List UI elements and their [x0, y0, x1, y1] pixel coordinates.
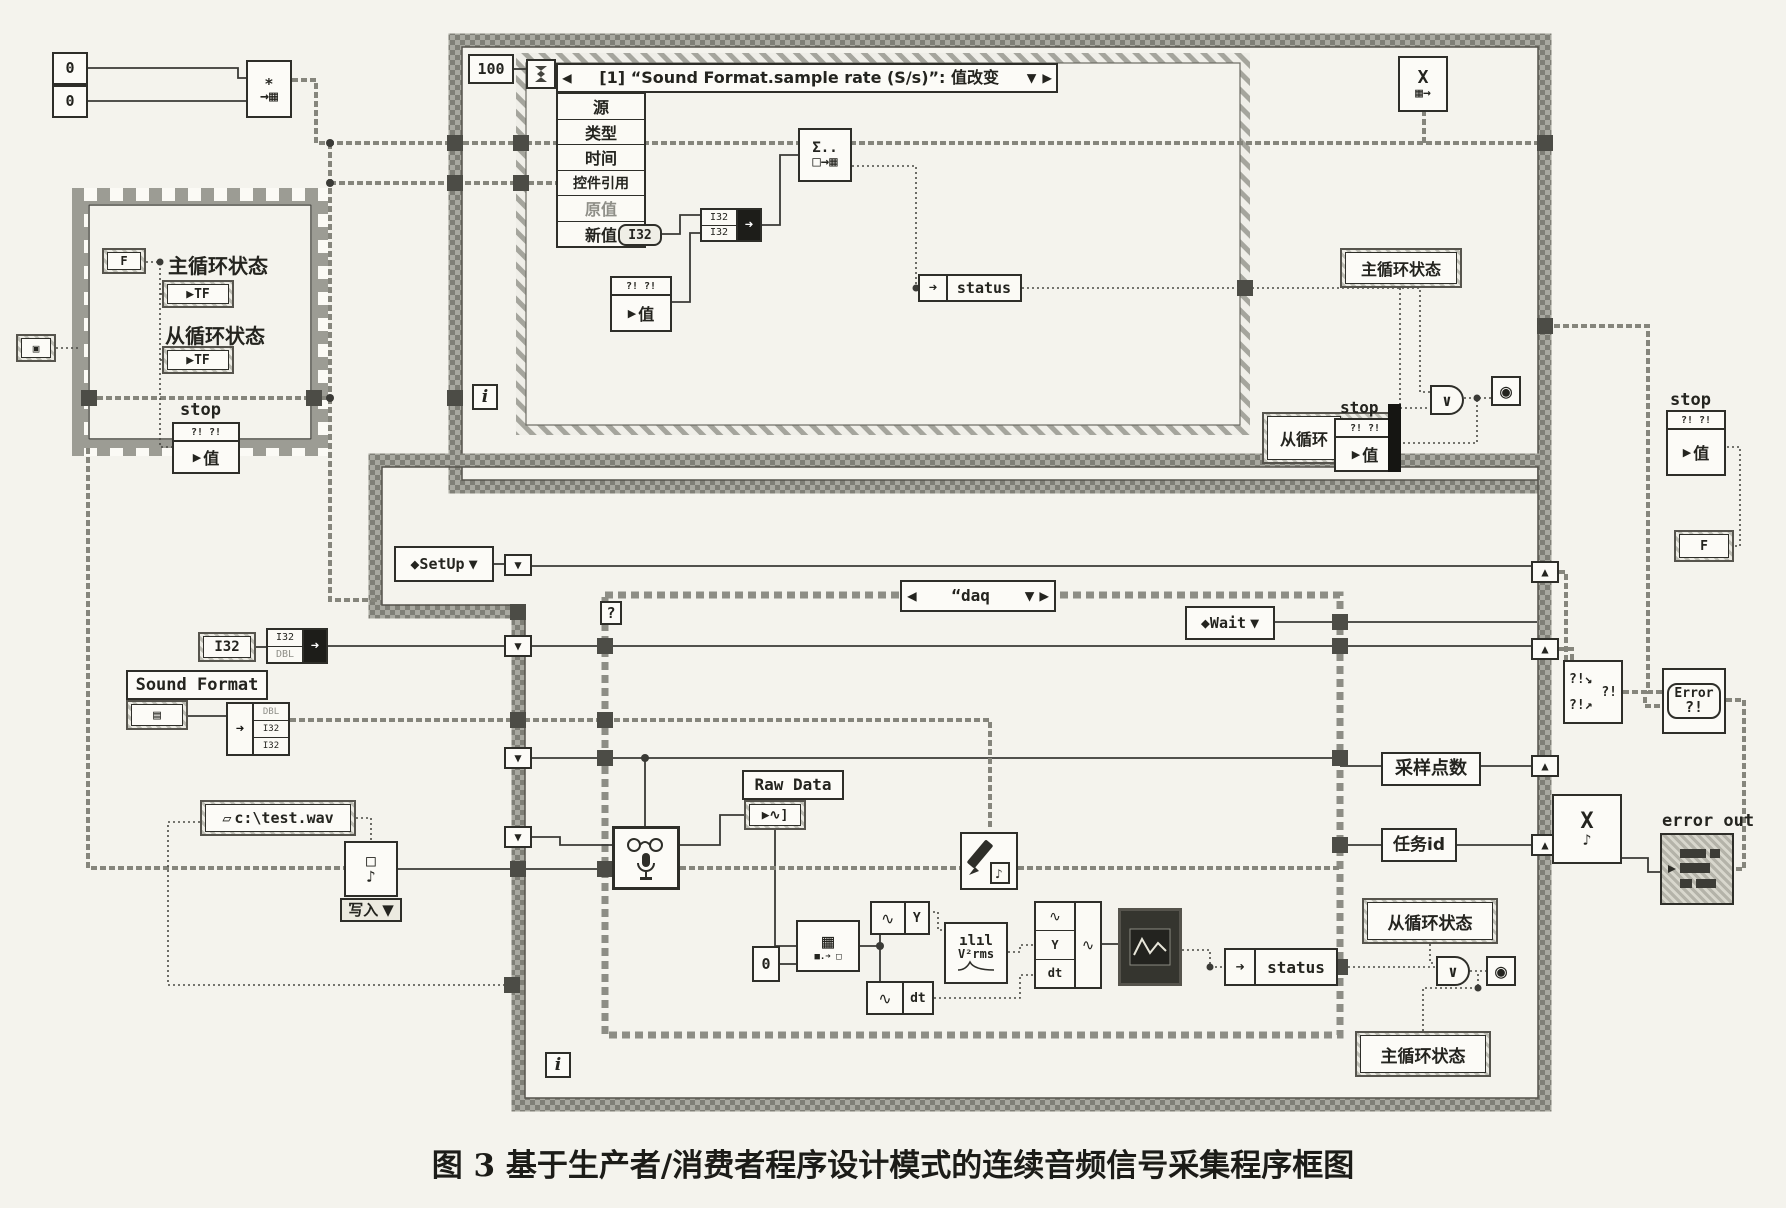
main-state-label-seq: 主循环状态: [168, 250, 268, 279]
shift-register-left-4[interactable]: ▼: [504, 826, 532, 848]
microphone-icon: [636, 853, 656, 881]
timeout-hourglass-icon: [526, 59, 556, 89]
event-field-type: 类型: [558, 120, 644, 146]
newval-i32-terminal[interactable]: I32: [618, 224, 662, 246]
unbundle-node[interactable]: ➜ DBL I32 I32: [226, 702, 290, 756]
scrollbar-slug: [1388, 404, 1401, 472]
get-waveform-y-node[interactable]: ∿ Y: [870, 901, 930, 935]
wire-layer: [0, 0, 1786, 1208]
sound-file-close-icon[interactable]: X ♪: [1552, 794, 1622, 864]
event-case-selector[interactable]: ◀ [1] “Sound Format.sample rate (S/s)”: …: [556, 63, 1058, 93]
daq-case-selector[interactable]: ◀ “daq ▼▶: [900, 580, 1056, 612]
task-id-indicator[interactable]: 任务id: [1381, 828, 1457, 862]
obtain-queue-icon[interactable]: ∗ →▦: [246, 60, 292, 118]
zero-constant[interactable]: 0: [752, 946, 780, 982]
stop-label-top: stop: [1340, 398, 1379, 417]
shift-register-right-1[interactable]: ▲: [1531, 561, 1559, 583]
stop-value-node-seq[interactable]: ?! ?! ▶值: [172, 422, 240, 474]
iteration-terminal-bottom: i: [545, 1052, 571, 1078]
release-queue-icon[interactable]: X ▦→: [1398, 56, 1448, 112]
index-array-icon[interactable]: ▦ ■.➜ □: [796, 920, 860, 972]
event-next-arrow[interactable]: ▶: [1042, 70, 1052, 86]
sub-state-label-seq: 从循环状态: [165, 320, 265, 349]
or-gate-icon-bottom[interactable]: ∨: [1436, 956, 1470, 986]
i32-conversion-node[interactable]: I32 I32 ➜: [700, 208, 762, 242]
sound-input-read-icon[interactable]: [612, 826, 680, 890]
stop-value-property-node-top[interactable]: ?! ?! ▶值: [1334, 418, 1396, 472]
sample-count-indicator[interactable]: 采样点数: [1381, 752, 1481, 786]
timeout-constant[interactable]: 100: [468, 54, 514, 84]
svg-text:♪: ♪: [995, 867, 1003, 881]
event-case-title: [1] “Sound Format.sample rate (S/s)”: 值改…: [599, 70, 999, 86]
merge-errors-icon[interactable]: ?!↘ ?! ?!↗: [1563, 660, 1623, 724]
sound-format-terminal[interactable]: ▤: [126, 700, 188, 730]
event-field-oldval: 原值: [558, 196, 644, 222]
bottom-while-loop-border: [375, 460, 1545, 1105]
glasses-icon: [624, 835, 668, 853]
error-out-cluster[interactable]: [1660, 833, 1734, 905]
or-gate-icon-top[interactable]: ∨: [1430, 385, 1464, 415]
error-speech-bubble: Error ?!: [1667, 683, 1720, 719]
event-field-time: 时间: [558, 145, 644, 171]
get-waveform-dt-node[interactable]: ∿ dt: [866, 981, 934, 1015]
case-dropdown-icon[interactable]: ▼: [1025, 588, 1035, 604]
i32-dbl-conversion-node[interactable]: I32 DBL ➜: [266, 628, 328, 664]
event-prev-arrow[interactable]: ◀: [562, 70, 572, 86]
wait-enum-constant[interactable]: ◆Wait▼: [1185, 606, 1275, 640]
status-unbundle-node-bottom[interactable]: ➜ status: [1224, 948, 1338, 986]
raw-data-label: Raw Data: [742, 770, 844, 800]
i32-local-variable[interactable]: I32: [198, 632, 256, 662]
main-state-tf-local[interactable]: ▶TF: [162, 280, 234, 308]
status-unbundle-node[interactable]: ➜ status: [918, 274, 1022, 302]
peak-curve-icon: [956, 960, 996, 972]
shift-register-left-2[interactable]: ▼: [504, 635, 532, 657]
event-field-source: 源: [558, 94, 644, 120]
shift-register-right-3[interactable]: ▲: [1531, 755, 1559, 777]
waveform-graph-icon[interactable]: [1118, 908, 1182, 986]
amplitude-levels-icon[interactable]: ılıl V²rms: [944, 922, 1008, 984]
main-loop-state-local[interactable]: 主循环状态: [1340, 248, 1462, 288]
case-prev-arrow[interactable]: ◀: [907, 588, 917, 604]
event-field-ctlref: 控件引用: [558, 171, 644, 197]
value-property-node[interactable]: ?! ?! ▶值: [610, 276, 672, 332]
labview-block-diagram: 0 0 ∗ →▦ X ▦→ 100 ◀ [1] “Sound Format.sa…: [0, 0, 1786, 1208]
loop-condition-terminal-top[interactable]: ◉: [1491, 376, 1521, 406]
loop-condition-terminal-bottom[interactable]: ◉: [1486, 956, 1516, 986]
stop-label-seq: stop: [180, 400, 221, 420]
error-out-label: error out: [1662, 811, 1754, 831]
folder-icon: ▱: [222, 809, 231, 827]
main-loop-state-local-bottom[interactable]: 主循环状态: [1355, 1031, 1491, 1077]
stop-value-node-right[interactable]: ?! ?! ▶值: [1666, 410, 1726, 476]
write-mode-selector[interactable]: 写入▼: [340, 898, 402, 922]
simple-error-handler-icon[interactable]: Error ?!: [1662, 668, 1726, 734]
sub-state-tf-local[interactable]: ▶TF: [162, 346, 234, 374]
shift-register-left-1[interactable]: ▼: [504, 554, 532, 576]
case-next-arrow[interactable]: ▶: [1039, 588, 1049, 604]
pencil-note-icon: ♪: [965, 837, 1013, 885]
case-question-terminal: ?: [600, 601, 622, 625]
event-dropdown-icon[interactable]: ▼: [1027, 70, 1037, 86]
sound-file-write-icon[interactable]: ♪: [960, 832, 1018, 890]
figure-caption: 图 3 基于生产者/消费者程序设计模式的连续音频信号采集程序框图: [0, 1140, 1786, 1185]
iteration-terminal-top: i: [472, 384, 498, 410]
shift-register-left-3[interactable]: ▼: [504, 747, 532, 769]
boolean-constant-bottom[interactable]: 0: [52, 85, 88, 118]
stop-label-right: stop: [1670, 390, 1711, 410]
false-constant[interactable]: F: [102, 248, 146, 274]
sound-file-open-icon[interactable]: □ ♪: [344, 841, 398, 897]
unbundle-arrow-icon: ➜: [1226, 950, 1256, 984]
tf-local-right[interactable]: F: [1674, 530, 1734, 562]
sound-format-label: Sound Format: [126, 670, 268, 700]
enqueue-element-icon[interactable]: Σ.. □→▦: [798, 128, 852, 182]
sub-loop-state-local-bottom[interactable]: 从循环状态: [1362, 898, 1498, 944]
shift-register-right-2[interactable]: ▲: [1531, 638, 1559, 660]
case-name: “daq: [951, 588, 990, 604]
error-in-terminal[interactable]: ▣: [16, 334, 56, 362]
setup-enum-constant[interactable]: ◆SetUp▼: [394, 546, 494, 582]
build-waveform-node[interactable]: ∿ Y dt ∿: [1034, 901, 1102, 989]
raw-data-local[interactable]: ▶∿]: [744, 800, 806, 830]
error-cluster-fields: [1668, 841, 1726, 897]
file-path-constant[interactable]: ▱c:\test.wav: [200, 800, 356, 836]
graph-trace-icon: [1128, 927, 1172, 967]
tunnels: [81, 135, 1553, 993]
boolean-constant-top[interactable]: 0: [52, 52, 88, 85]
unbundle-arrow-icon: ➜: [920, 276, 948, 300]
